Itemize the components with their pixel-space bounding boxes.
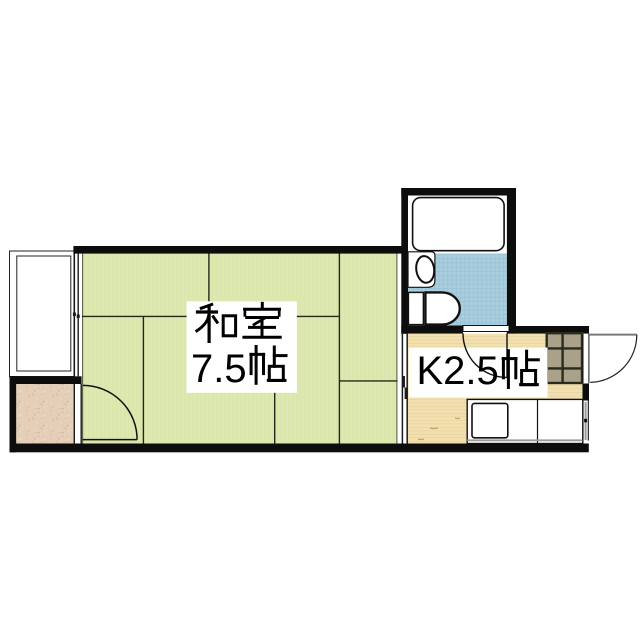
svg-text:7.5: 7.5 — [191, 347, 247, 391]
svg-text:K2.5: K2.5 — [417, 349, 499, 393]
